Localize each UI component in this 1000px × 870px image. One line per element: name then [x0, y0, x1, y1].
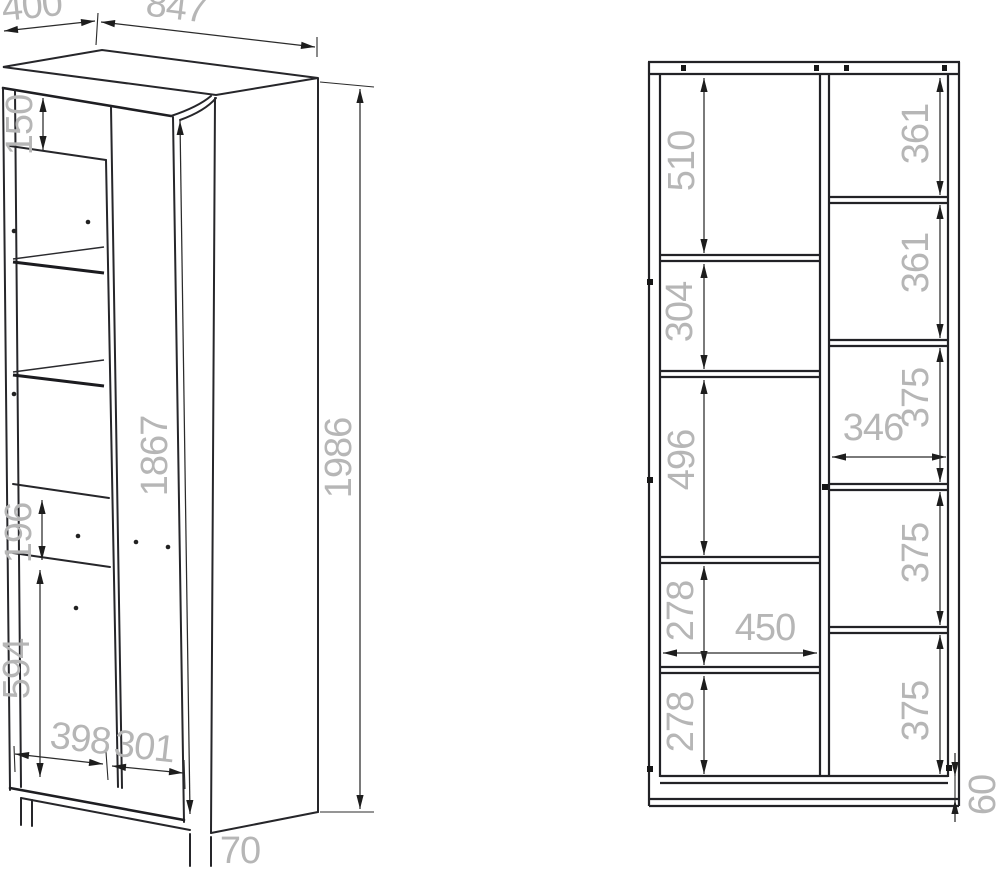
right-view-elevation: 510 304 496 278 278 450 346 361 361 375 … — [647, 62, 1000, 822]
dim-right-section-2: 361 — [895, 233, 937, 293]
left-view-perspective: 400 847 150 1867 1986 196 594 398 301 70 — [0, 0, 374, 870]
dim-top-width: 847 — [144, 0, 209, 32]
dim-leg-height: 70 — [220, 830, 260, 870]
technical-drawing: 400 847 150 1867 1986 196 594 398 301 70 — [0, 0, 1000, 870]
dim-drawer-height: 196 — [0, 503, 40, 563]
dim-plinth-height: 60 — [962, 775, 1000, 815]
dim-total-height: 1986 — [318, 418, 360, 499]
dim-left-section-5: 278 — [660, 692, 702, 752]
dim-right-section-3: 375 — [895, 368, 937, 428]
dim-left-section-4: 278 — [660, 581, 702, 641]
dim-left-inner-width: 450 — [735, 607, 795, 649]
dim-right-door-width: 301 — [112, 723, 177, 772]
dim-right-section-1: 361 — [895, 104, 937, 164]
dim-top-rail-height: 150 — [0, 95, 41, 155]
dim-right-section-4: 375 — [895, 523, 937, 583]
glass-door-shelves — [13, 247, 104, 386]
dim-left-section-3: 496 — [661, 430, 703, 490]
dim-left-door-width: 398 — [48, 715, 113, 764]
dim-right-section-5: 375 — [895, 681, 937, 741]
dim-front-door-height: 1867 — [134, 416, 176, 497]
dim-lower-door-height: 594 — [0, 638, 38, 699]
dim-left-section-2: 304 — [659, 281, 701, 342]
dim-left-section-1: 510 — [661, 131, 703, 191]
